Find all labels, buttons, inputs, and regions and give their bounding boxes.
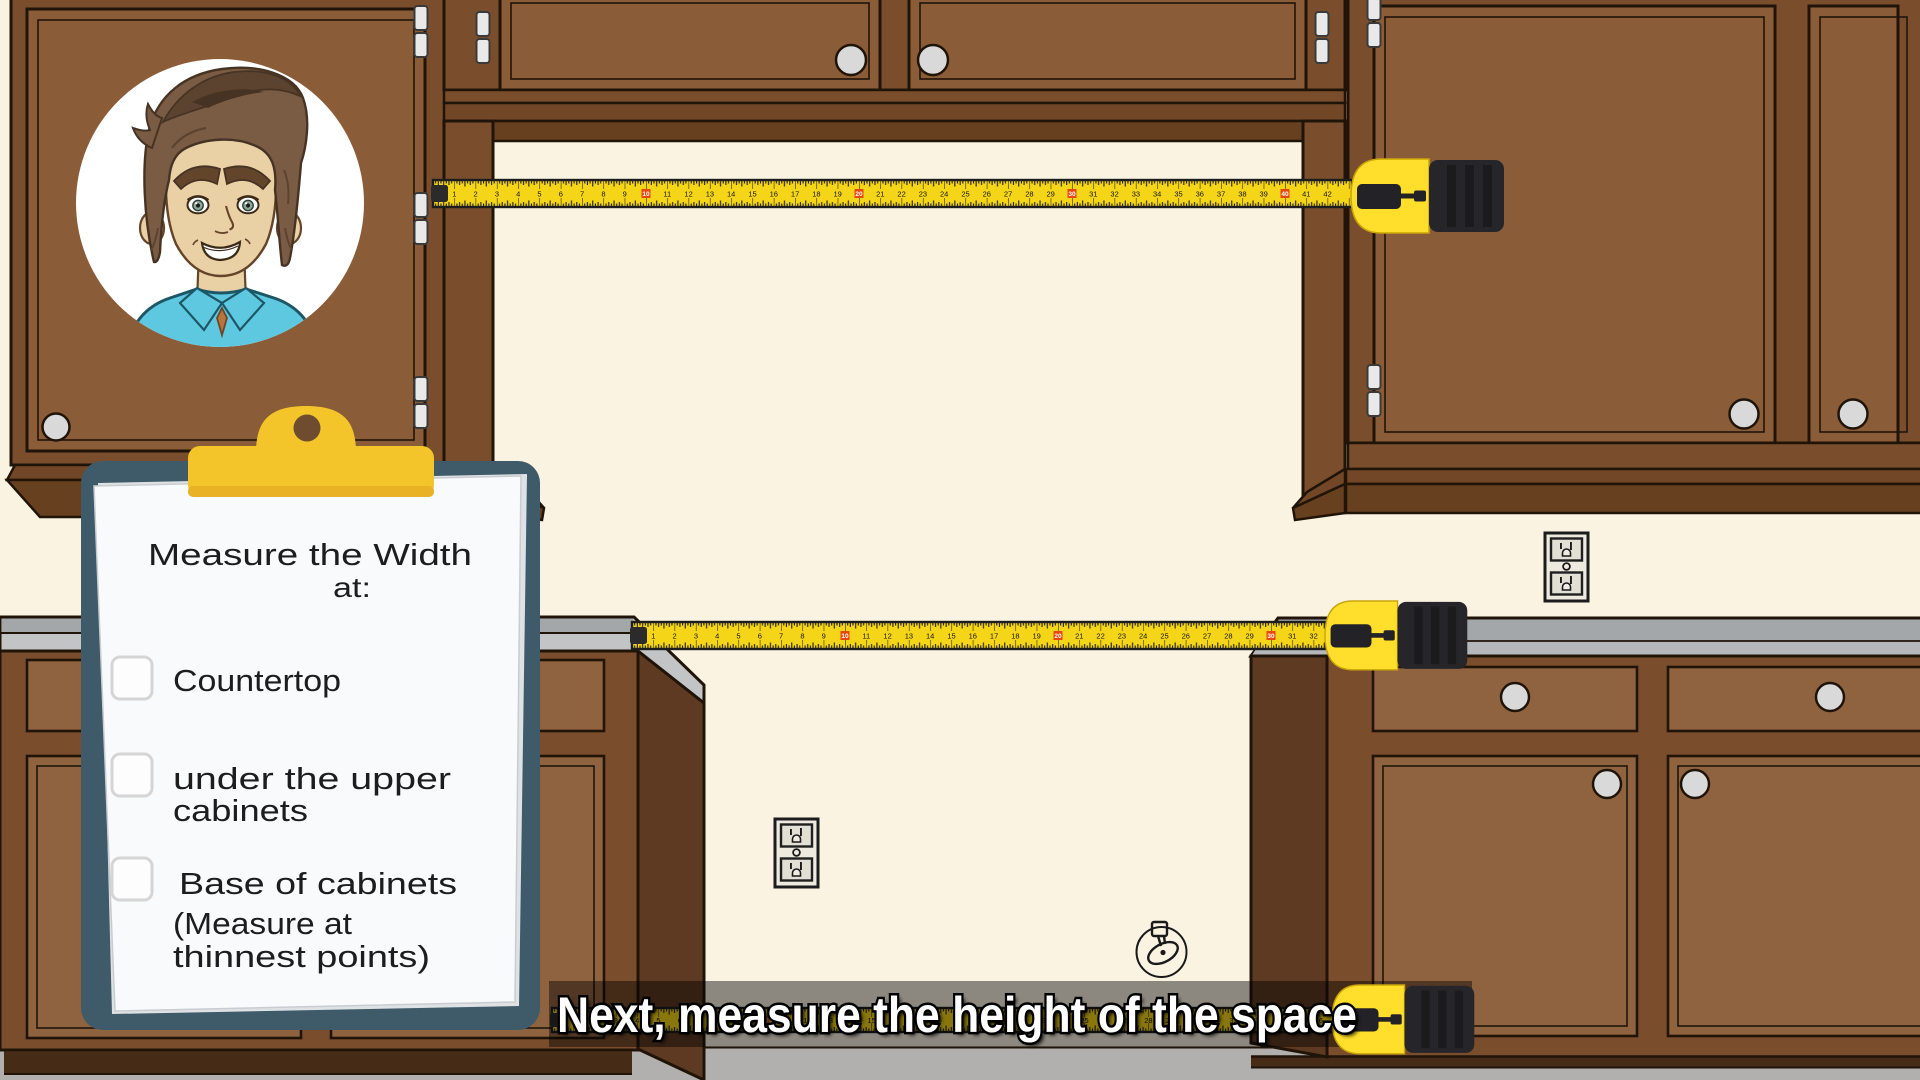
svg-text:18: 18 bbox=[812, 189, 820, 198]
svg-text:10: 10 bbox=[841, 633, 849, 640]
svg-text:5: 5 bbox=[537, 189, 541, 198]
svg-text:9: 9 bbox=[623, 189, 627, 198]
svg-text:26: 26 bbox=[1182, 631, 1190, 640]
svg-text:32: 32 bbox=[1309, 631, 1317, 640]
svg-text:29: 29 bbox=[1246, 631, 1254, 640]
svg-text:14: 14 bbox=[727, 189, 735, 198]
svg-text:24: 24 bbox=[940, 189, 948, 198]
svg-text:6: 6 bbox=[559, 189, 563, 198]
svg-text:31: 31 bbox=[1288, 631, 1296, 640]
svg-text:11: 11 bbox=[862, 631, 870, 640]
svg-text:8: 8 bbox=[800, 631, 804, 640]
svg-text:15: 15 bbox=[748, 189, 756, 198]
svg-text:19: 19 bbox=[834, 189, 842, 198]
svg-text:30: 30 bbox=[1267, 633, 1275, 640]
svg-text:21: 21 bbox=[1075, 631, 1083, 640]
svg-text:34: 34 bbox=[1153, 189, 1161, 198]
svg-text:14: 14 bbox=[926, 631, 934, 640]
svg-text:22: 22 bbox=[1096, 631, 1104, 640]
svg-text:27: 27 bbox=[1203, 631, 1211, 640]
svg-text:42: 42 bbox=[1323, 189, 1331, 198]
svg-text:27: 27 bbox=[1004, 189, 1012, 198]
svg-text:17: 17 bbox=[990, 631, 998, 640]
svg-text:20: 20 bbox=[855, 191, 863, 198]
svg-text:29: 29 bbox=[1047, 189, 1055, 198]
svg-text:cabinets: cabinets bbox=[173, 793, 308, 828]
svg-text:thinnest points): thinnest points) bbox=[173, 939, 430, 974]
svg-text:2: 2 bbox=[474, 189, 478, 198]
svg-text:Measure the Width: Measure the Width bbox=[148, 537, 472, 572]
svg-text:13: 13 bbox=[706, 189, 714, 198]
svg-text:13: 13 bbox=[905, 631, 913, 640]
svg-text:28: 28 bbox=[1025, 189, 1033, 198]
svg-text:8: 8 bbox=[601, 189, 605, 198]
svg-text:(Measure at: (Measure at bbox=[173, 906, 352, 941]
svg-text:Countertop: Countertop bbox=[173, 663, 341, 698]
svg-text:17: 17 bbox=[791, 189, 799, 198]
svg-text:31: 31 bbox=[1089, 189, 1097, 198]
svg-text:30: 30 bbox=[1068, 191, 1076, 198]
svg-text:2: 2 bbox=[673, 631, 677, 640]
svg-text:18: 18 bbox=[1011, 631, 1019, 640]
svg-text:at:: at: bbox=[333, 572, 371, 603]
svg-text:33: 33 bbox=[1132, 189, 1140, 198]
svg-text:25: 25 bbox=[1160, 631, 1168, 640]
svg-text:Base of cabinets: Base of cabinets bbox=[179, 866, 457, 901]
svg-text:9: 9 bbox=[822, 631, 826, 640]
svg-text:12: 12 bbox=[883, 631, 891, 640]
svg-text:35: 35 bbox=[1174, 189, 1182, 198]
svg-text:Next, measure the height of th: Next, measure the height of the space bbox=[557, 987, 1357, 1043]
svg-text:21: 21 bbox=[876, 189, 884, 198]
svg-text:25: 25 bbox=[961, 189, 969, 198]
svg-text:1: 1 bbox=[651, 631, 655, 640]
svg-text:10: 10 bbox=[642, 191, 650, 198]
svg-text:38: 38 bbox=[1238, 189, 1246, 198]
svg-text:3: 3 bbox=[495, 189, 499, 198]
svg-text:7: 7 bbox=[580, 189, 584, 198]
svg-text:24: 24 bbox=[1139, 631, 1147, 640]
svg-text:7: 7 bbox=[779, 631, 783, 640]
svg-text:20: 20 bbox=[1054, 633, 1062, 640]
svg-text:16: 16 bbox=[770, 189, 778, 198]
svg-text:6: 6 bbox=[758, 631, 762, 640]
svg-text:26: 26 bbox=[983, 189, 991, 198]
svg-text:4: 4 bbox=[715, 631, 719, 640]
svg-text:under the upper: under the upper bbox=[173, 761, 451, 796]
svg-text:11: 11 bbox=[663, 189, 671, 198]
svg-text:15: 15 bbox=[947, 631, 955, 640]
svg-text:4: 4 bbox=[516, 189, 520, 198]
svg-text:19: 19 bbox=[1033, 631, 1041, 640]
svg-text:23: 23 bbox=[919, 189, 927, 198]
svg-text:32: 32 bbox=[1110, 189, 1118, 198]
svg-text:37: 37 bbox=[1217, 189, 1225, 198]
svg-text:28: 28 bbox=[1224, 631, 1232, 640]
svg-text:3: 3 bbox=[694, 631, 698, 640]
svg-text:5: 5 bbox=[736, 631, 740, 640]
svg-text:40: 40 bbox=[1281, 191, 1289, 198]
svg-text:1: 1 bbox=[452, 189, 456, 198]
svg-text:36: 36 bbox=[1196, 189, 1204, 198]
svg-text:22: 22 bbox=[897, 189, 905, 198]
svg-text:23: 23 bbox=[1118, 631, 1126, 640]
svg-text:41: 41 bbox=[1302, 189, 1310, 198]
svg-text:39: 39 bbox=[1260, 189, 1268, 198]
svg-text:12: 12 bbox=[684, 189, 692, 198]
svg-text:16: 16 bbox=[969, 631, 977, 640]
